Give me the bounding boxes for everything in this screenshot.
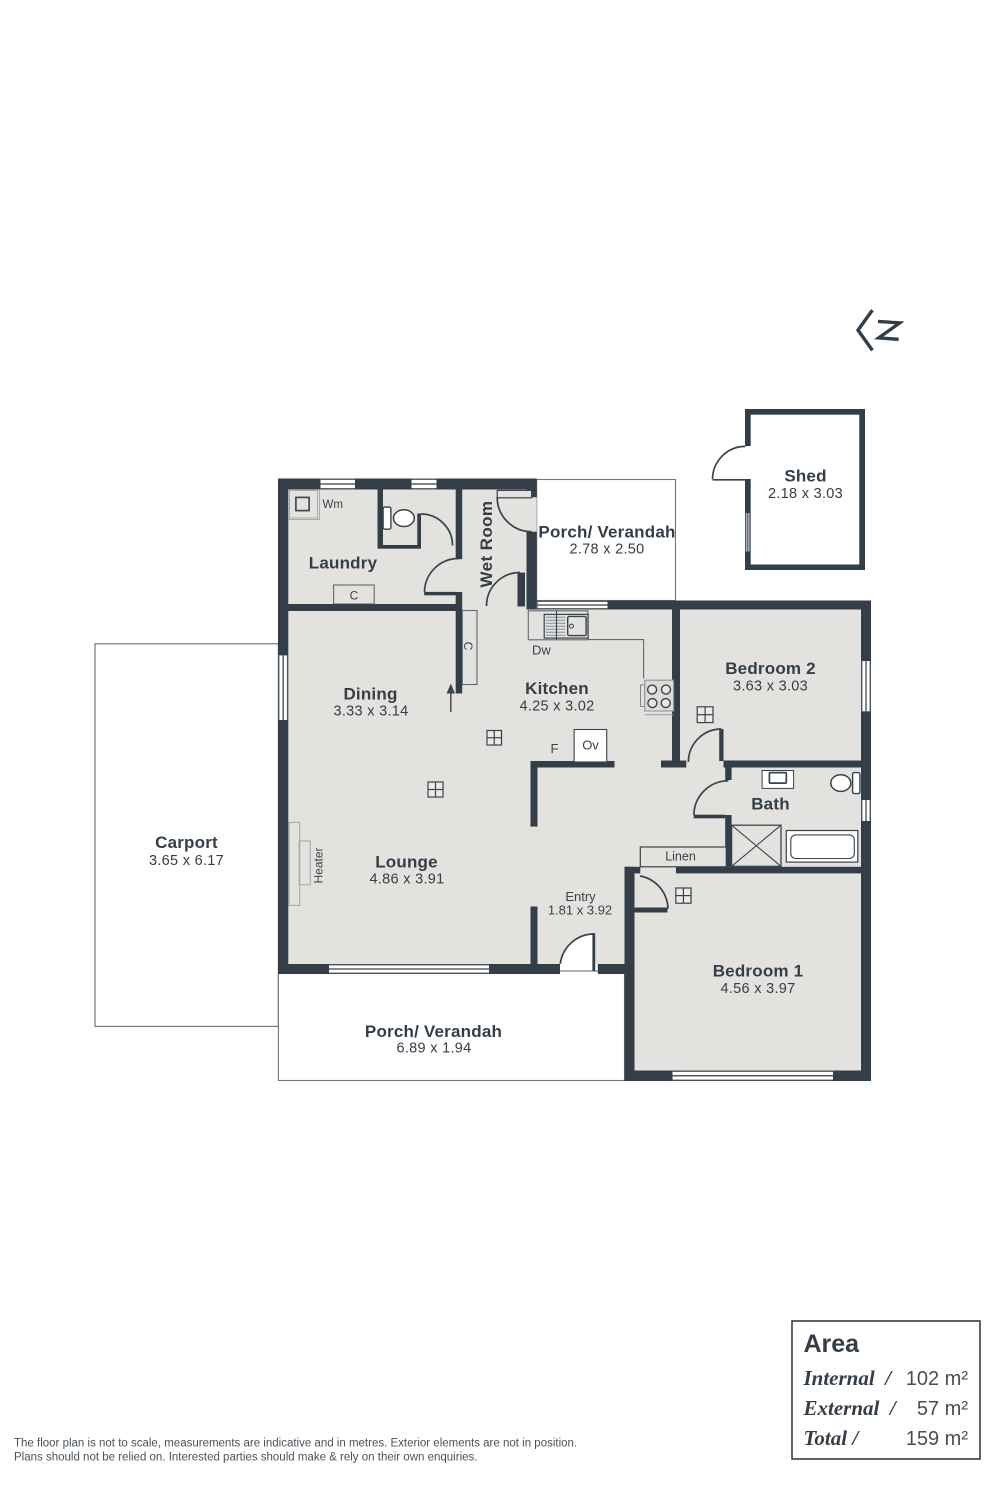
svg-text:4.25 x 3.02: 4.25 x 3.02 (519, 699, 594, 715)
svg-text:Shed: Shed (784, 467, 826, 486)
svg-text:Bedroom 2: Bedroom 2 (725, 659, 816, 678)
svg-text:C: C (461, 642, 475, 651)
svg-text:F: F (551, 741, 559, 756)
svg-text:Heater: Heater (312, 847, 326, 883)
svg-text:57 m²: 57 m² (917, 1398, 968, 1420)
svg-text:3.63 x 3.03: 3.63 x 3.03 (733, 679, 808, 695)
svg-text:The floor plan is not to scale: The floor plan is not to scale, measurem… (14, 1438, 577, 1450)
svg-text:Kitchen: Kitchen (525, 679, 589, 698)
svg-text:Bedroom 1: Bedroom 1 (713, 962, 804, 981)
svg-text:4.56 x 3.97: 4.56 x 3.97 (720, 981, 795, 997)
svg-text:Internal /: Internal / (803, 1366, 894, 1390)
svg-text:2.78 x 2.50: 2.78 x 2.50 (569, 542, 644, 558)
svg-text:6.89 x 1.94: 6.89 x 1.94 (396, 1041, 471, 1057)
svg-text:Dw: Dw (532, 643, 551, 658)
svg-text:2.18 x 3.03: 2.18 x 3.03 (768, 486, 843, 502)
svg-text:Porch/ Verandah: Porch/ Verandah (365, 1022, 502, 1041)
svg-text:Lounge: Lounge (375, 853, 438, 872)
svg-text:Total /: Total / (804, 1426, 861, 1450)
svg-text:Linen: Linen (665, 850, 696, 864)
svg-text:Carport: Carport (155, 833, 218, 852)
svg-text:3.65 x 6.17: 3.65 x 6.17 (149, 853, 224, 869)
svg-text:4.86 x 3.91: 4.86 x 3.91 (369, 872, 444, 888)
svg-text:1.81 x 3.92: 1.81 x 3.92 (548, 903, 612, 918)
svg-text:Wm: Wm (323, 499, 343, 511)
svg-text:Ov: Ov (582, 738, 599, 753)
svg-text:External /: External / (803, 1396, 898, 1420)
svg-text:3.33 x 3.14: 3.33 x 3.14 (333, 704, 408, 720)
svg-text:Bath: Bath (751, 795, 790, 814)
svg-text:159 m²: 159 m² (906, 1428, 969, 1450)
svg-text:C: C (350, 589, 359, 603)
svg-text:Laundry: Laundry (309, 554, 378, 573)
svg-text:Porch/ Verandah: Porch/ Verandah (538, 523, 675, 542)
svg-text:Plans should not be relied on.: Plans should not be relied on. Intereste… (14, 1452, 477, 1464)
svg-text:Wet Room: Wet Room (477, 501, 496, 588)
svg-text:Dining: Dining (343, 685, 397, 704)
svg-text:Area: Area (804, 1330, 861, 1358)
svg-text:102 m²: 102 m² (906, 1368, 969, 1390)
